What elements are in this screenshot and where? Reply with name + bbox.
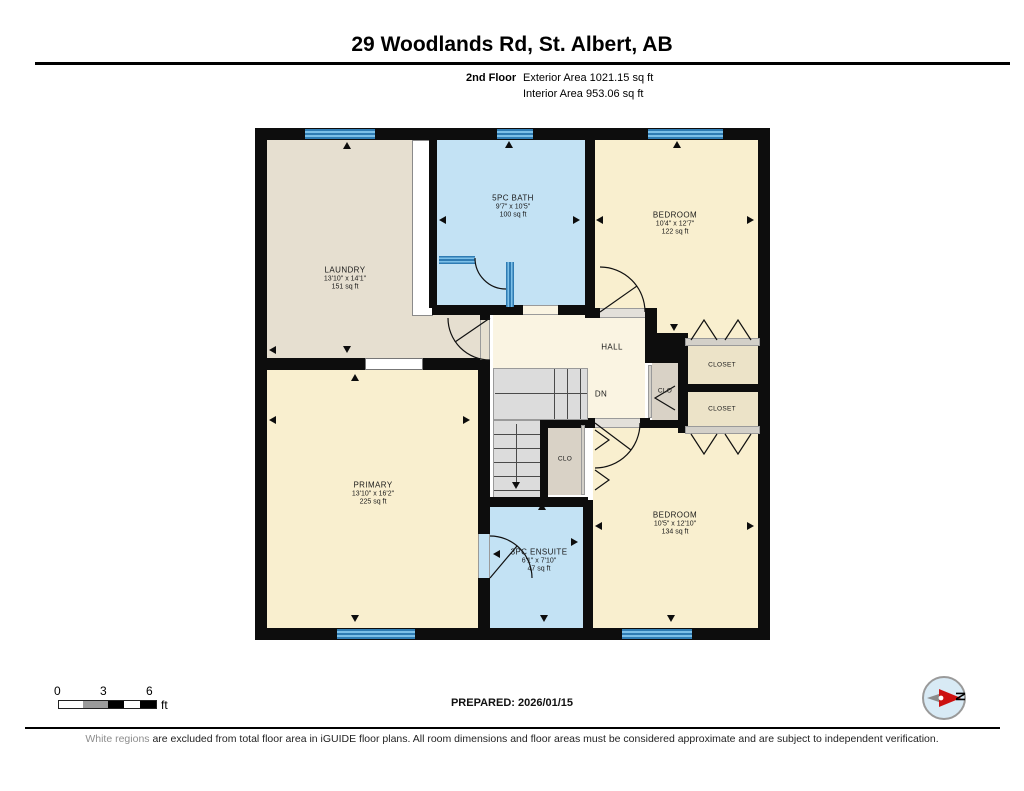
room-label-primary: PRIMARY 13'10" x 16'2" 225 sq ft xyxy=(352,481,394,506)
room-label-hall: HALL xyxy=(601,343,623,352)
header-divider xyxy=(35,62,1010,65)
room-dims: 10'4" x 12'7" xyxy=(653,221,697,228)
room-area: 122 sq ft xyxy=(653,229,697,236)
dimension-arrow xyxy=(747,216,754,224)
wall xyxy=(478,358,490,630)
window xyxy=(622,629,692,639)
dimension-arrow xyxy=(351,615,359,622)
bath-door-opening xyxy=(523,305,558,315)
dimension-arrow xyxy=(505,141,513,148)
room-label-closet-bottom: CLOSET xyxy=(708,406,736,413)
prepared-date: PREPARED: 2026/01/15 xyxy=(0,697,1024,709)
stairs-direction: DN xyxy=(595,390,607,399)
stair-rail xyxy=(495,393,587,394)
stairs-dn-label: DN xyxy=(595,390,607,399)
dimension-arrow xyxy=(493,550,500,558)
dimension-arrow xyxy=(667,615,675,622)
room-name: CLOSET xyxy=(708,406,736,413)
room-dims: 6'1" x 7'10" xyxy=(511,558,568,565)
room-label-ensuite: 3PC ENSUITE 6'1" x 7'10" 47 sq ft xyxy=(511,548,568,573)
room-dims: 10'5" x 12'10" xyxy=(653,521,697,528)
scale-tick-6: 6 xyxy=(146,684,153,698)
room-label-closet-hall: CLO xyxy=(658,388,672,395)
dimension-arrow xyxy=(269,416,276,424)
scale-tick-0: 0 xyxy=(54,684,61,698)
window xyxy=(648,129,723,139)
room-area: 100 sq ft xyxy=(492,212,534,219)
stair-rail xyxy=(516,424,517,482)
room-name: CLO xyxy=(558,456,572,463)
dimension-arrow xyxy=(538,503,546,510)
room-name: LAUNDRY xyxy=(324,266,366,275)
closet-track xyxy=(648,365,652,418)
stair-down-arrow xyxy=(512,482,520,489)
room-hall-upper xyxy=(493,310,645,368)
dimension-arrow xyxy=(596,216,603,224)
dimension-arrow xyxy=(343,346,351,353)
wall xyxy=(685,384,760,392)
room-label-laundry: LAUNDRY 13'10" x 14'1" 151 sq ft xyxy=(324,266,366,291)
closet-track xyxy=(685,338,760,346)
room-name: 5PC BATH xyxy=(492,194,534,203)
room-dims: 9'7" x 10'5" xyxy=(492,204,534,211)
dimension-arrow xyxy=(269,346,276,354)
room-name: BEDROOM xyxy=(653,211,697,220)
dimension-arrow xyxy=(463,416,470,424)
room-area: 151 sq ft xyxy=(324,284,366,291)
ensuite-door-opening xyxy=(478,534,490,578)
floor-plan-page: 29 Woodlands Rd, St. Albert, AB 2nd Floo… xyxy=(0,0,1024,791)
room-name: 3PC ENSUITE xyxy=(511,548,568,557)
room-name: BEDROOM xyxy=(653,511,697,520)
page-title: 29 Woodlands Rd, St. Albert, AB xyxy=(0,33,1024,57)
laundry-door-opening xyxy=(480,320,490,360)
bedroom1-door-opening xyxy=(600,308,645,318)
wall xyxy=(540,420,548,498)
floor-plan: LAUNDRY 13'10" x 14'1" 151 sq ft 5PC BAT… xyxy=(255,128,770,640)
scale-tick-3: 3 xyxy=(100,684,107,698)
room-name: CLO xyxy=(658,388,672,395)
room-area: 134 sq ft xyxy=(653,529,697,536)
dimension-arrow xyxy=(351,374,359,381)
shower-glass xyxy=(439,256,475,264)
dimension-arrow xyxy=(439,216,446,224)
room-name: CLOSET xyxy=(708,362,736,369)
wall xyxy=(678,333,688,433)
shower-glass xyxy=(506,262,514,307)
room-label-closet-primary: CLO xyxy=(558,456,572,463)
room-dims: 13'10" x 16'2" xyxy=(352,491,394,498)
room-label-bedroom-2: BEDROOM 10'5" x 12'10" 134 sq ft xyxy=(653,511,697,536)
bedroom2-door-opening xyxy=(595,418,640,428)
disclaimer-text: White regions are excluded from total fl… xyxy=(0,733,1024,745)
wall xyxy=(585,138,595,318)
dimension-arrow xyxy=(571,538,578,546)
dimension-arrow xyxy=(343,142,351,149)
room-name: HALL xyxy=(601,343,623,352)
closet-track xyxy=(685,426,760,434)
room-name: PRIMARY xyxy=(352,481,394,490)
floor-label: 2nd Floor xyxy=(466,72,516,84)
dimension-arrow xyxy=(670,324,678,331)
compass-north-label: N xyxy=(953,692,968,701)
window xyxy=(497,129,533,139)
stairs-upper-run xyxy=(493,368,588,420)
dimension-arrow xyxy=(673,141,681,148)
stair-treads xyxy=(542,369,588,419)
primary-opening xyxy=(365,358,423,370)
wall xyxy=(650,420,688,428)
interior-area-label: Interior Area 953.06 sq ft xyxy=(523,88,643,100)
wall xyxy=(429,138,437,308)
room-area: 47 sq ft xyxy=(511,566,568,573)
dimension-arrow xyxy=(573,216,580,224)
exterior-area-label: Exterior Area 1021.15 sq ft xyxy=(523,72,653,84)
room-dims: 13'10" x 14'1" xyxy=(324,276,366,283)
closet-track xyxy=(581,425,585,495)
room-label-bedroom-1: BEDROOM 10'4" x 12'7" 122 sq ft xyxy=(653,211,697,236)
footer-divider xyxy=(25,727,1000,729)
room-area: 225 sq ft xyxy=(352,499,394,506)
disclaimer-body: are excluded from total floor area in iG… xyxy=(150,733,939,745)
room-label-bath: 5PC BATH 9'7" x 10'5" 100 sq ft xyxy=(492,194,534,219)
window xyxy=(305,129,375,139)
disclaimer-prefix: White regions xyxy=(85,733,149,745)
wall xyxy=(255,628,770,640)
dimension-arrow xyxy=(747,522,754,530)
dimension-arrow xyxy=(595,522,602,530)
room-label-closet-top: CLOSET xyxy=(708,362,736,369)
window xyxy=(337,629,415,639)
wall xyxy=(583,500,593,630)
dimension-arrow xyxy=(540,615,548,622)
wall xyxy=(255,128,267,640)
